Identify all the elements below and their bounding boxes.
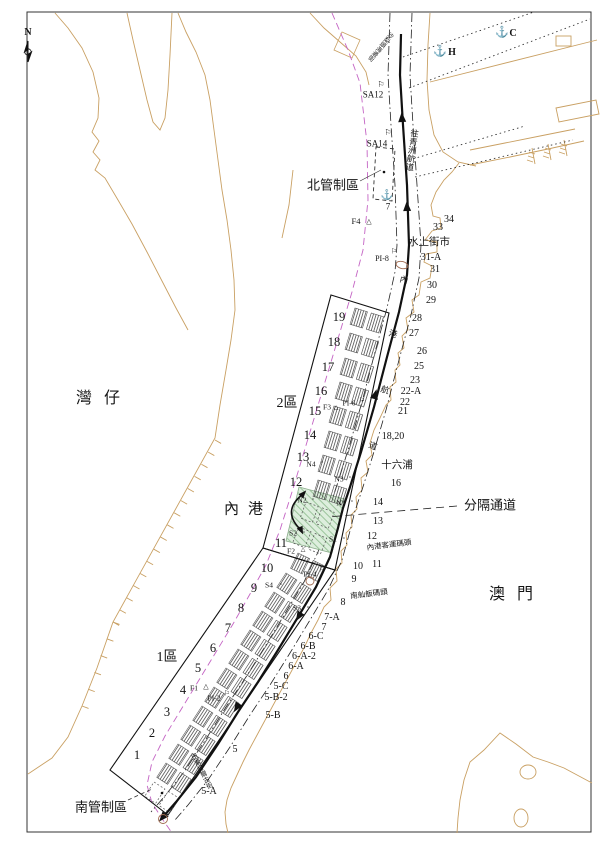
outer-channel-group <box>403 12 590 177</box>
harbour-chart: N灣仔內港澳門北管制區南管制區分隔通道2區1區水上街市十六浦內港客運碼頭南舢舨碼… <box>0 0 602 852</box>
route-line <box>156 34 411 824</box>
compass-icon <box>25 41 32 62</box>
map-frame <box>27 12 591 832</box>
coastline-group <box>28 13 599 833</box>
pier-group <box>157 308 384 794</box>
control-zones <box>128 147 395 813</box>
map-canvas <box>0 0 602 852</box>
